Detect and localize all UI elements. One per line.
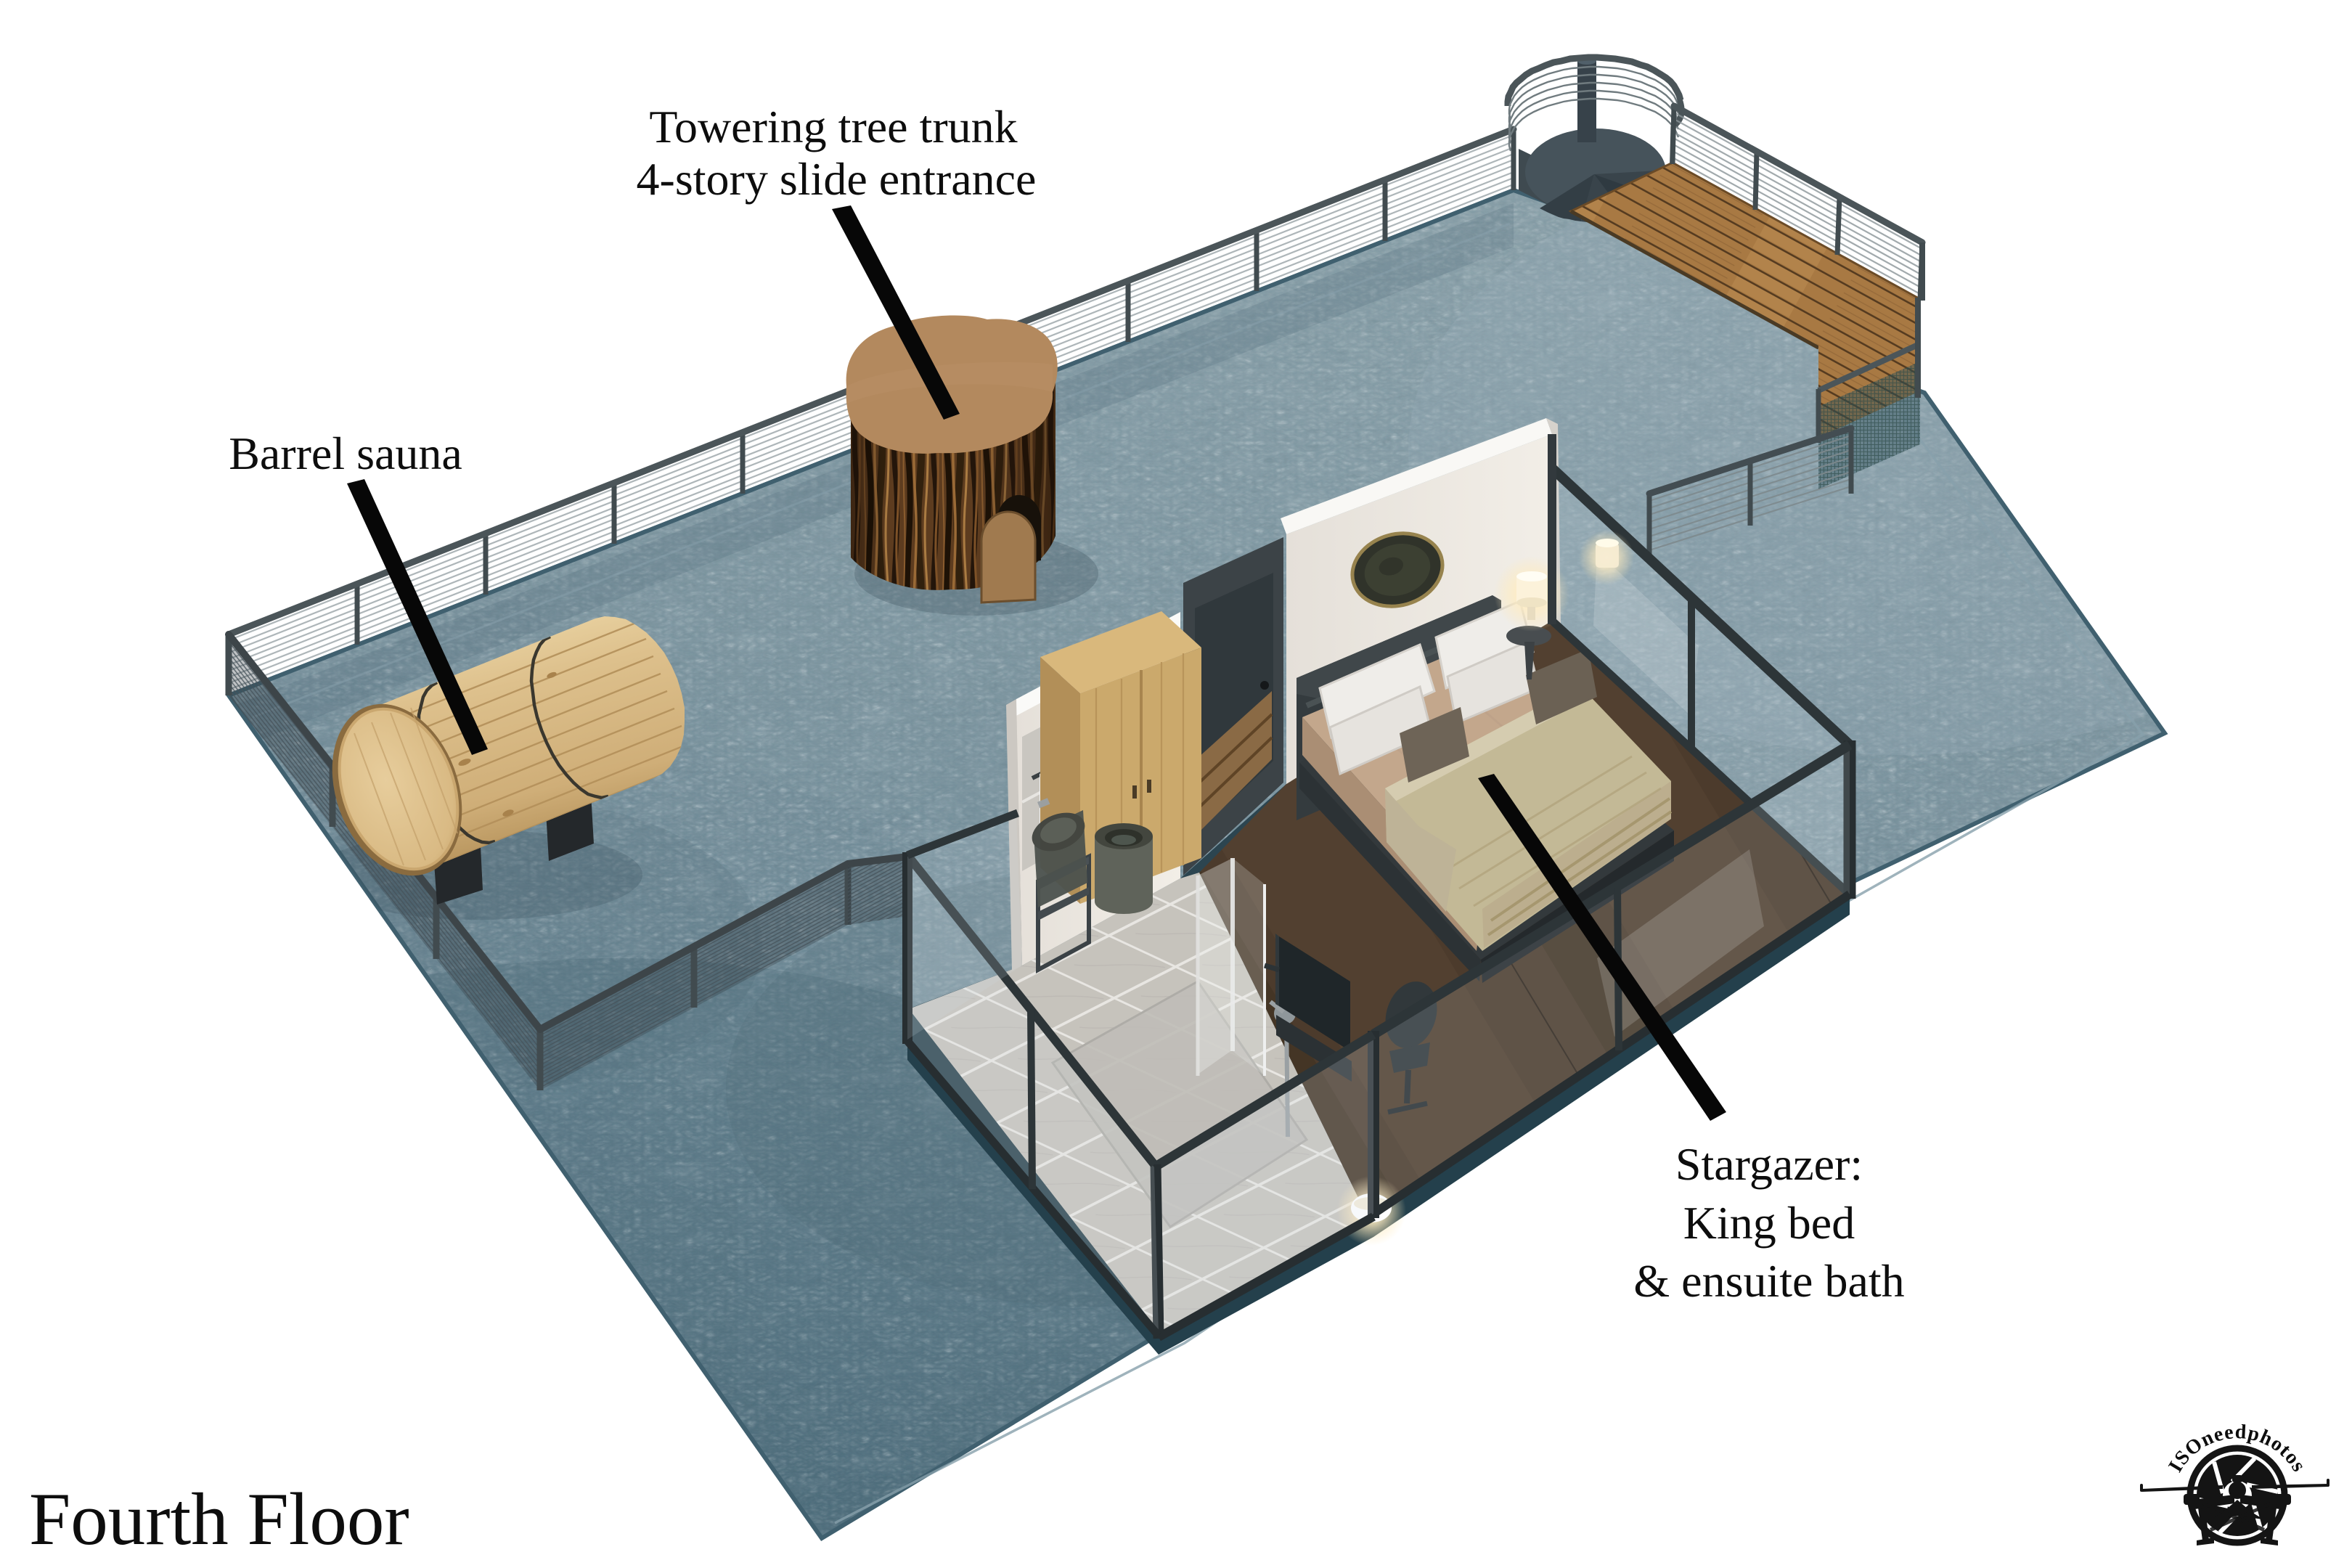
svg-text:4-story slide entrance: 4-story slide entrance: [637, 153, 1037, 205]
svg-text:& ensuite bath: & ensuite bath: [1633, 1255, 1904, 1307]
svg-text:Towering tree trunk: Towering tree trunk: [649, 101, 1017, 152]
svg-text:King bed: King bed: [1683, 1197, 1855, 1249]
svg-text:Fourth Floor: Fourth Floor: [29, 1478, 409, 1561]
svg-text:Barrel sauna: Barrel sauna: [229, 428, 462, 479]
svg-text:Stargazer:: Stargazer:: [1675, 1138, 1863, 1190]
